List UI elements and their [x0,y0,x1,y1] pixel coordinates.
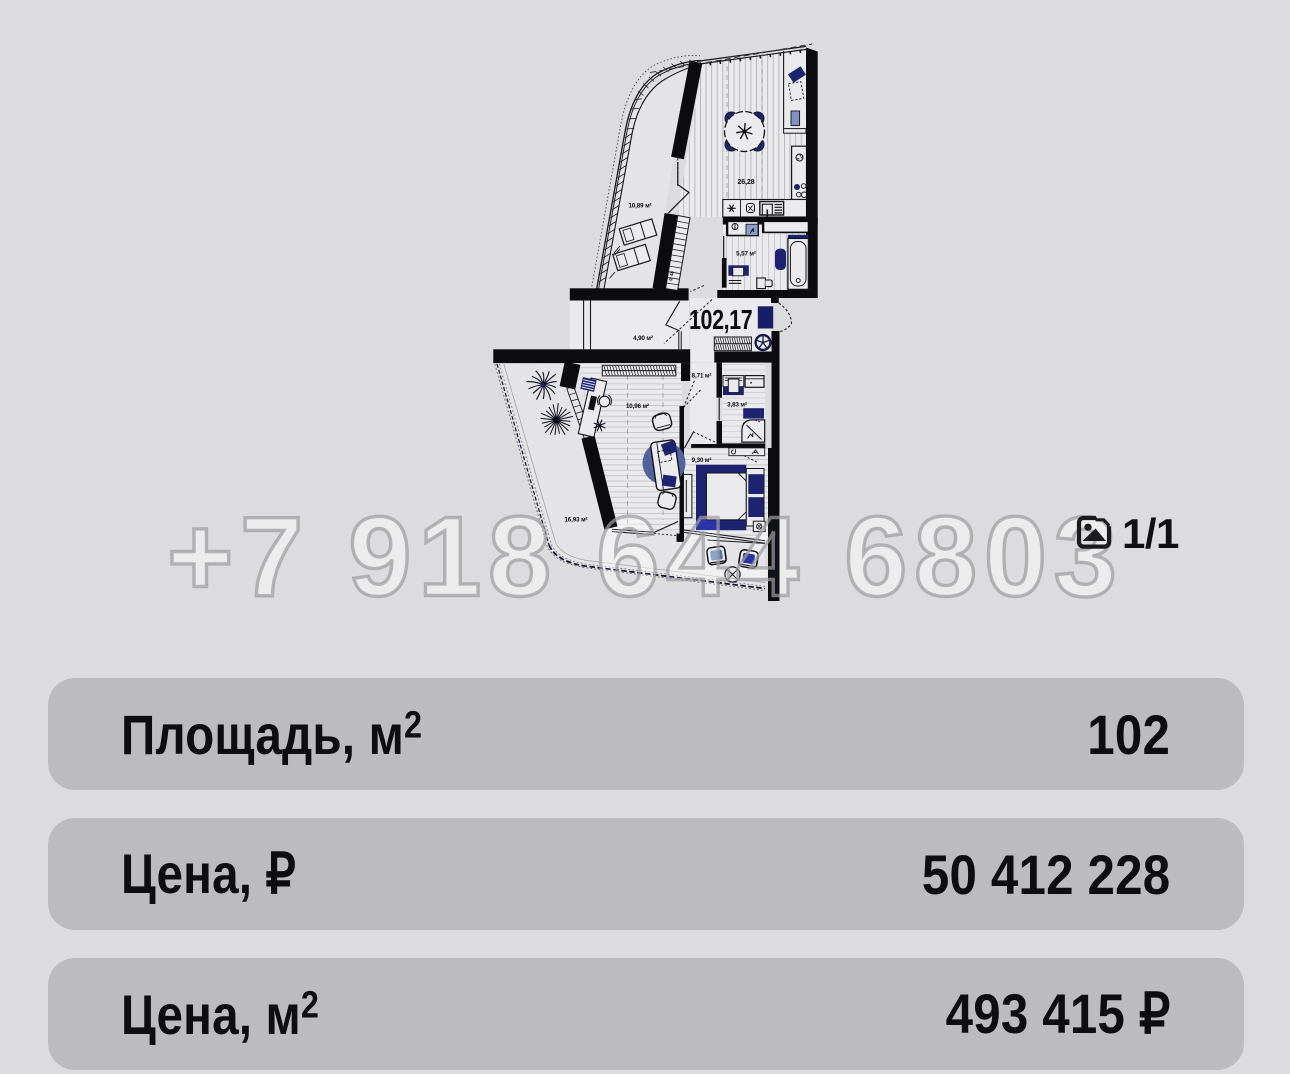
svg-text:+7 918 644 6803: +7 918 644 6803 [167,494,1123,620]
